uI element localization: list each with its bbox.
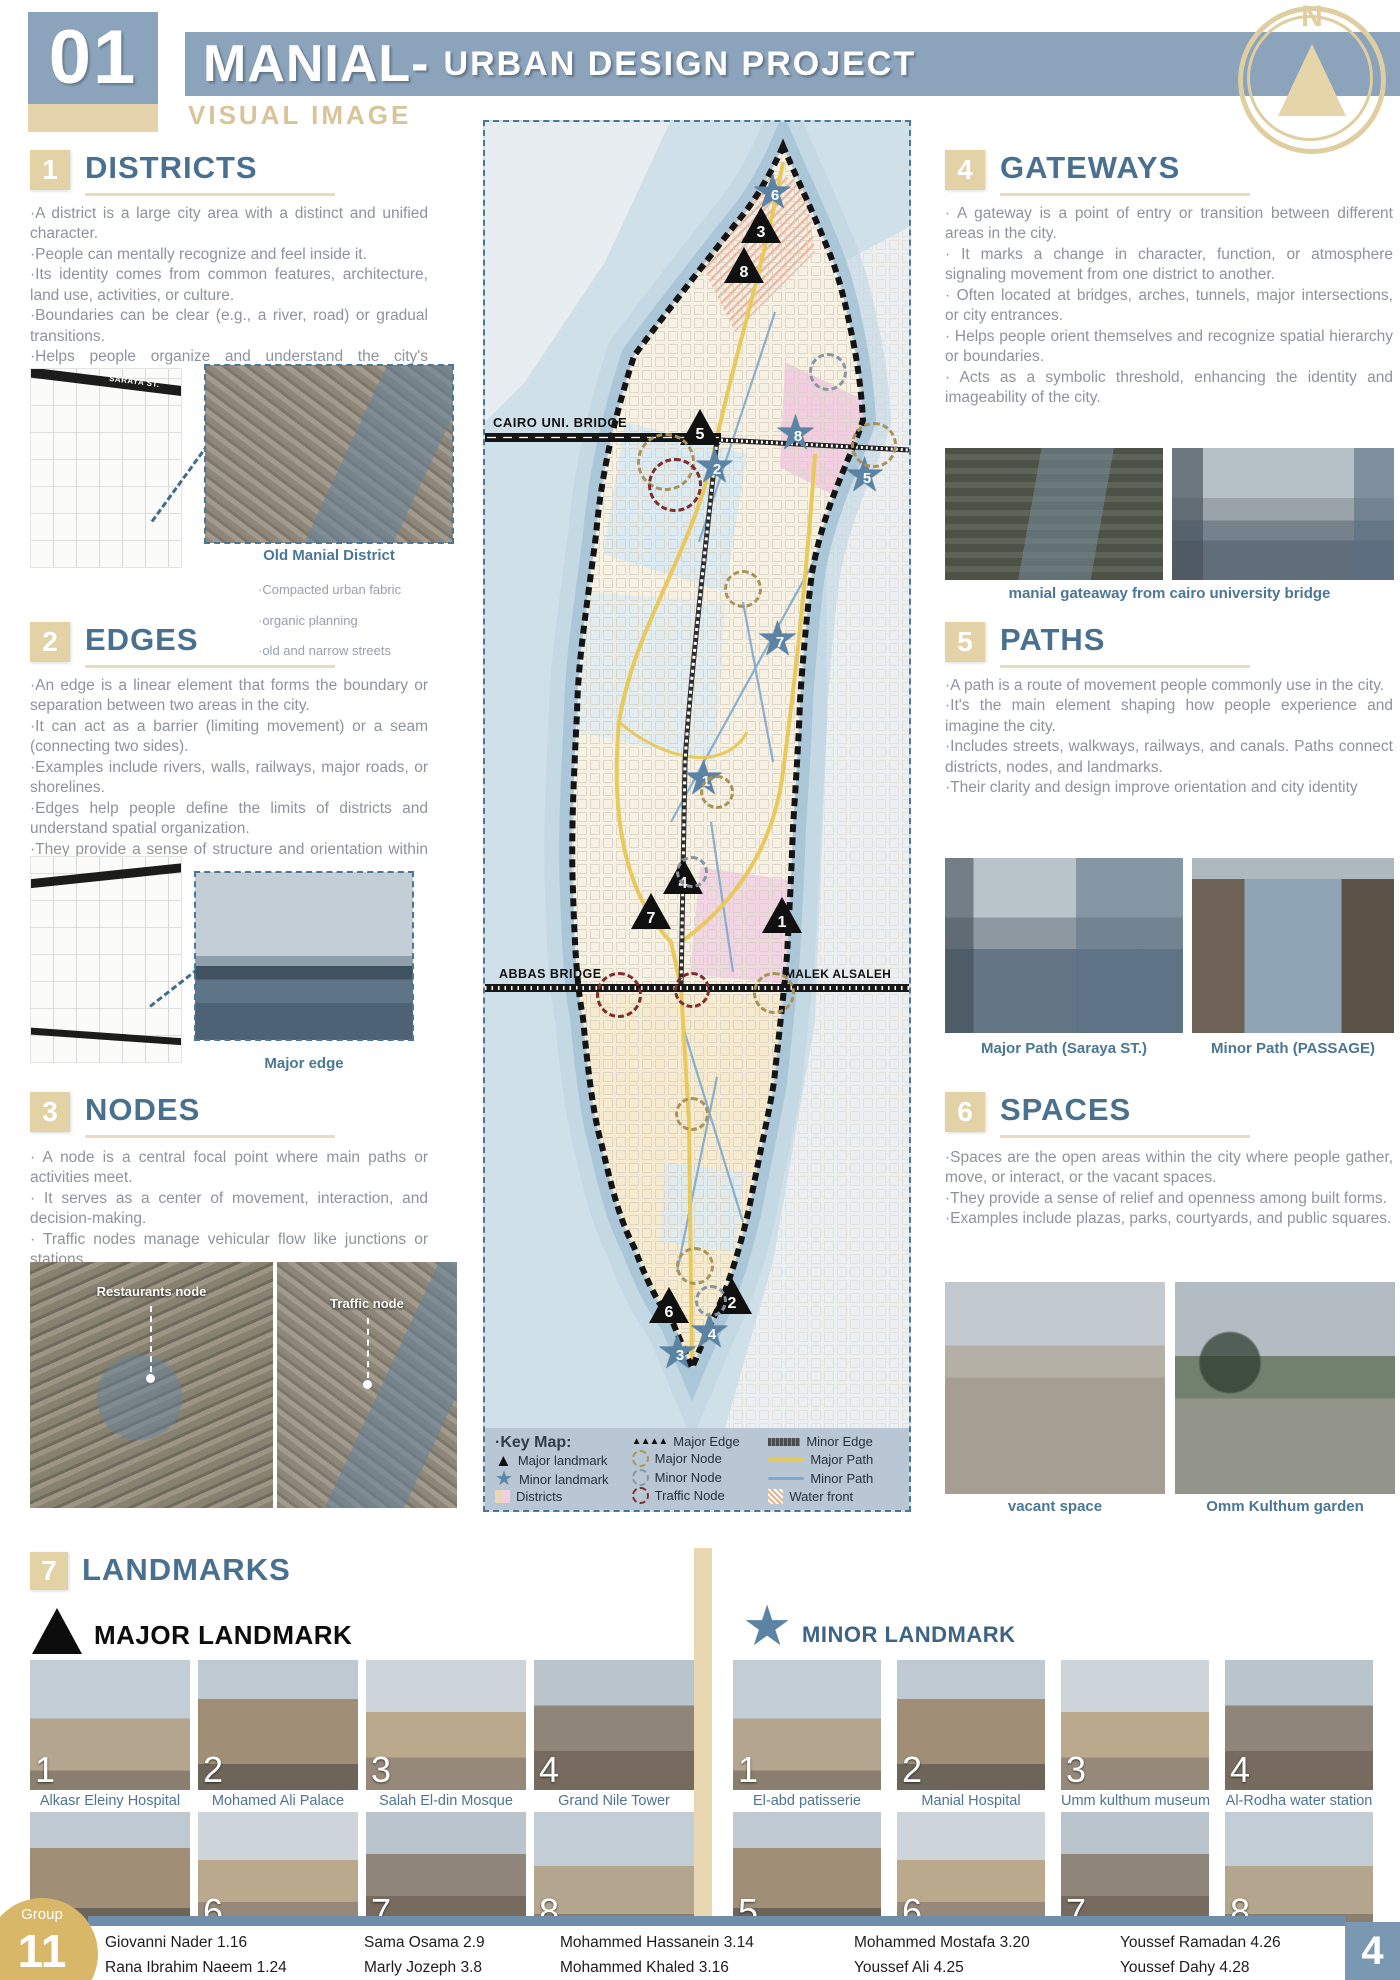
nodes-title: NODES [85,1092,200,1128]
nodes-text: · A node is a central focal point where … [30,1148,428,1271]
traffic-node-label: Traffic node [277,1296,457,1311]
spaces-text: ·Spaces are the open areas within the ci… [945,1148,1393,1230]
edges-bullet: ·An edge is a linear element that forms … [30,676,428,717]
title-banner: MANIAL- URBAN DESIGN PROJECT [185,32,1400,96]
manial-key-map: CAIRO UNI. BRIDGE ABBAS BRIDGE MALEK ALS… [483,120,911,1512]
landmark-photo-number: 1 [35,1752,55,1788]
water-front-icon [768,1489,783,1504]
landmark-caption: Salah El-din Mosque [366,1790,526,1812]
paths-text: ·A path is a route of movement people co… [945,676,1393,799]
edges-bullet: ·Examples include rivers, walls, railway… [30,758,428,799]
landmark-photo-galleria-mall-cinema: 5 [733,1812,881,1932]
landmarks-title: LANDMARKS [82,1552,291,1588]
districts-icon [495,1490,510,1503]
spaces-bullet: ·Spaces are the open areas within the ci… [945,1148,1393,1189]
gateways-underline [1000,193,1250,196]
legend-label: Districts [516,1489,562,1504]
group-number: 11 [0,1924,98,1978]
nodes-bullet: · A node is a central focal point where … [30,1148,428,1189]
gateways-bullet: · Acts as a symbolic threshold, enhancin… [945,368,1393,409]
minor-path-icon [768,1477,804,1480]
paths-bullet: ·Their clarity and design improve orient… [945,778,1393,798]
major-landmark-icon: ▲ [495,1452,512,1469]
paths-bullet: ·A path is a route of movement people co… [945,676,1393,696]
cairo-uni-bridge-label: CAIRO UNI. BRIDGE [493,415,627,430]
legend-col2: ▲▲▲▲Major EdgeMajor NodeMinor NodeTraffi… [632,1434,763,1504]
gateways-bullet: · A gateway is a point of entry or trans… [945,204,1393,245]
landmark-photo-galaxy-cinema: 6 [897,1812,1045,1932]
landmark-caption: Manial Hospital [897,1790,1045,1812]
legend-label: Water front [789,1489,853,1504]
legend-label: Minor Path [810,1471,873,1486]
legend-label: Major Path [810,1452,873,1467]
minor-edge-icon [768,1438,800,1446]
island-map-svg: CAIRO UNI. BRIDGE ABBAS BRIDGE MALEK ALS… [485,122,909,1428]
districts-bullet: ·A district is a large city area with a … [30,204,428,245]
gateways-caption: manial gateaway from cairo university br… [945,585,1394,602]
minor-landmark-icon: ★ [495,1469,513,1489]
landmark-photo-manial-hospital: 2 [897,1660,1045,1790]
landmark-photo-alkasr-eleiny-hospital: 1 [30,1660,190,1790]
districts-title: DISTRICTS [85,150,258,186]
districts-note: ·old and narrow streets [258,642,401,660]
districts-note: ·Compacted urban fabric [258,581,401,599]
districts-aerial-photo [205,365,453,543]
gateways-title: GATEWAYS [1000,150,1180,186]
landmark-photo-al-rodha-water-station: 4 [1225,1660,1373,1790]
legend-col1: ·Key Map:▲Major landmark★Minor landmarkD… [495,1434,626,1504]
edges-underline [85,665,335,668]
team-member: Mohammed Hassanein 3.14 [560,1934,854,1952]
minor-landmark-icon: ★ [742,1598,792,1654]
spaces-bullet: ·Examples include plazas, parks, courtya… [945,1209,1393,1229]
malek-alsaleh-label: MALEK ALSALEH [785,967,891,981]
landmark-photo-qaitbay-mosque: 6 [198,1812,358,1932]
landmark-photo-number: 4 [539,1752,559,1788]
major-landmark-icon [32,1608,82,1654]
legend-label: Major landmark [518,1453,608,1468]
landmark-photo-grand-nile-tower: 4 [534,1660,694,1790]
districts-map-thumb: SARAYA ST. [30,368,182,568]
landmark-caption: Umm kulthum museum [1061,1790,1209,1812]
page-number: 4 [1345,1922,1400,1980]
legend-item-major-path: Major Path [768,1452,899,1467]
node-dot [363,1380,372,1389]
legend-title: ·Key Map: [495,1434,626,1452]
edges-text: ·An edge is a linear element that forms … [30,676,428,881]
edges-number: 2 [30,622,70,662]
legend-item-major-edge: ▲▲▲▲Major Edge [632,1434,763,1449]
districts-bullet: ·Boundaries can be clear (e.g., a river,… [30,306,428,347]
gateway-satellite-photo [945,448,1163,580]
gateways-bullet: · Often located at bridges, arches, tunn… [945,286,1393,327]
landmark-photo-number: 2 [902,1752,922,1788]
restaurants-node-label: Restaurants node [30,1284,273,1299]
compass-north-label: N [1301,0,1323,34]
landmark-photo-number: 3 [371,1752,391,1788]
traffic-node-icon [632,1487,649,1504]
major-node-icon [632,1450,649,1467]
landmark-photo-faculty-of-tourism: 8 [1225,1812,1373,1932]
minor-path-caption: Minor Path (PASSAGE) [1192,1040,1394,1057]
garden-photo [1175,1282,1395,1494]
team-member: Sama Osama 2.9 [364,1934,560,1952]
restaurants-node-photo: Restaurants node [30,1262,273,1508]
poster-page: 01 MANIAL- URBAN DESIGN PROJECT VISUAL I… [0,0,1400,1980]
landmark-photo-salah-el-din-mosque: 3 [366,1660,526,1790]
nodes-number: 3 [30,1092,70,1132]
districts-bullet: ·People can mentally recognize and feel … [30,245,428,265]
legend-item-major-node: Major Node [632,1450,763,1467]
landmark-photo-nilometer: 7 [366,1812,526,1932]
poster-subtitle: URBAN DESIGN PROJECT [444,45,917,84]
districts-notes: ·Compacted urban fabric·organic planning… [258,568,401,673]
gateways-bullet: · Helps people orient themselves and rec… [945,327,1393,368]
landmark-photo-umm-kulthum-museum: 3 [1061,1660,1209,1790]
team-member: Mohammed Mostafa 3.20 [854,1934,1120,1952]
node-pointer-line [367,1318,369,1378]
spaces-title: SPACES [1000,1092,1131,1128]
districts-caption: Old Manial District [205,547,453,564]
landmarks-number: 7 [30,1552,68,1590]
landmark-caption: Grand Nile Tower [534,1790,694,1812]
landmark-photo-number: 1 [738,1752,758,1788]
districts-bullet: ·Its identity comes from common features… [30,265,428,306]
nodes-underline [85,1135,335,1138]
team-member: Giovanni Nader 1.16 [105,1934,364,1952]
landmark-photo-el-abd-patisserie: 1 [733,1660,881,1790]
landmarks-divider [694,1548,712,1916]
major-path-photo [945,858,1183,1033]
vacant-space-photo [945,1282,1165,1494]
legend-label: Major Edge [673,1434,739,1449]
gateways-bullet: · It marks a change in character, functi… [945,245,1393,286]
major-landmarks-grid: 1234Alkasr Eleiny HospitalMohamed Ali Pa… [30,1660,694,1954]
paths-number: 5 [945,622,985,662]
compass-icon: N [1238,6,1386,154]
landmark-photo-number: 2 [203,1752,223,1788]
legend-item-minor-edge: Minor Edge [768,1434,899,1449]
districts-underline [85,193,335,196]
node-dot [146,1374,155,1383]
node-pointer-line [150,1306,152,1372]
sheet-number-accent [28,104,158,132]
paths-bullet: ·It's the main element shaping how peopl… [945,696,1393,737]
north-arrow-icon [1278,44,1346,116]
team-member: Mohammed Khaled 3.16 [560,1959,854,1977]
spaces-number: 6 [945,1092,985,1132]
legend-item-minor-landmark: ★Minor landmark [495,1469,626,1489]
team-member: Youssef Dahy 4.28 [1120,1959,1335,1977]
team-member: Youssef Ramadan 4.26 [1120,1934,1335,1952]
gateway-street-photo [1172,448,1394,580]
poster-title: MANIAL- [203,34,430,94]
legend-item-traffic-node: Traffic Node [632,1487,763,1504]
legend-item-minor-node: Minor Node [632,1469,763,1486]
group-badge: Group 11 [0,1898,98,1980]
major-path-caption: Major Path (Saraya ST.) [945,1040,1183,1057]
paths-title: PATHS [1000,622,1105,658]
minor-landmarks-grid: 1234El-abd patisserieManial HospitalUmm … [733,1660,1373,1954]
legend-label: Minor landmark [519,1472,609,1487]
legend-item-major-landmark: ▲Major landmark [495,1452,626,1469]
landmark-caption: Alkasr Eleiny Hospital [30,1790,190,1812]
legend-label: Major Node [655,1451,722,1466]
districts-number: 1 [30,150,70,190]
nodes-bullet: · It serves as a center of movement, int… [30,1189,428,1230]
paths-underline [1000,665,1250,668]
edges-map-thumb [30,856,182,1063]
landmark-caption: Al-Rodha water station [1225,1790,1373,1812]
minor-landmark-heading: MINOR LANDMARK [802,1622,1016,1648]
landmark-photo-mcdonald-s: 7 [1061,1812,1209,1932]
edges-caption: Major edge [195,1055,413,1072]
districts-note: ·organic planning [258,612,401,630]
landmark-photo-faculty-of-dentistry: 8 [534,1812,694,1932]
legend-label: Traffic Node [655,1488,725,1503]
team-member: Marly Jozeph 3.8 [364,1959,560,1977]
landmark-photo-mohamed-ali-palace: 2 [198,1660,358,1790]
major-edge-icon: ▲▲▲▲ [632,1436,668,1447]
spaces-underline [1000,1135,1250,1138]
edges-bullet: ·Edges help people define the limits of … [30,799,428,840]
team-member: Rana Ibrahim Naeem 1.24 [105,1959,364,1977]
landmark-photo-number: 3 [1066,1752,1086,1788]
minor-path-photo [1192,858,1394,1033]
legend-label: Minor Node [655,1470,722,1485]
legend-item-districts: Districts [495,1489,626,1504]
paths-bullet: ·Includes streets, walkways, railways, a… [945,737,1393,778]
key-map-legend: ·Key Map:▲Major landmark★Minor landmarkD… [485,1428,909,1510]
garden-caption: Omm Kulthum garden [1175,1498,1395,1515]
edges-nile-photo [195,872,413,1040]
landmark-caption: El-abd patisserie [733,1790,881,1812]
legend-item-water-front: Water front [768,1489,899,1504]
gateways-number: 4 [945,150,985,190]
districts-text: ·A district is a large city area with a … [30,204,428,388]
sheet-number: 01 [28,12,158,104]
landmark-photo-number: 4 [1230,1752,1250,1788]
spaces-bullet: ·They provide a sense of relief and open… [945,1189,1393,1209]
legend-item-minor-path: Minor Path [768,1471,899,1486]
major-path-icon [768,1458,804,1462]
legend-col3: Minor EdgeMajor PathMinor PathWater fron… [768,1434,899,1504]
major-landmark-heading: MAJOR LANDMARK [94,1620,352,1651]
abbas-bridge-label: ABBAS BRIDGE [499,967,602,981]
traffic-node-photo: Traffic node [277,1262,457,1508]
vacant-space-caption: vacant space [945,1498,1165,1515]
team-member: Youssef Ali 4.25 [854,1959,1120,1977]
poster-tagline: VISUAL IMAGE [188,100,411,131]
edges-bullet: ·It can act as a barrier (limiting movem… [30,717,428,758]
edges-title: EDGES [85,622,199,658]
minor-node-icon [632,1469,649,1486]
landmark-caption: Mohamed Ali Palace [198,1790,358,1812]
team-members-list: Giovanni Nader 1.16Sama Osama 2.9Mohamme… [105,1934,1335,1977]
gateways-text: · A gateway is a point of entry or trans… [945,204,1393,409]
group-label: Group [0,1906,98,1923]
legend-label: Minor Edge [806,1434,872,1449]
